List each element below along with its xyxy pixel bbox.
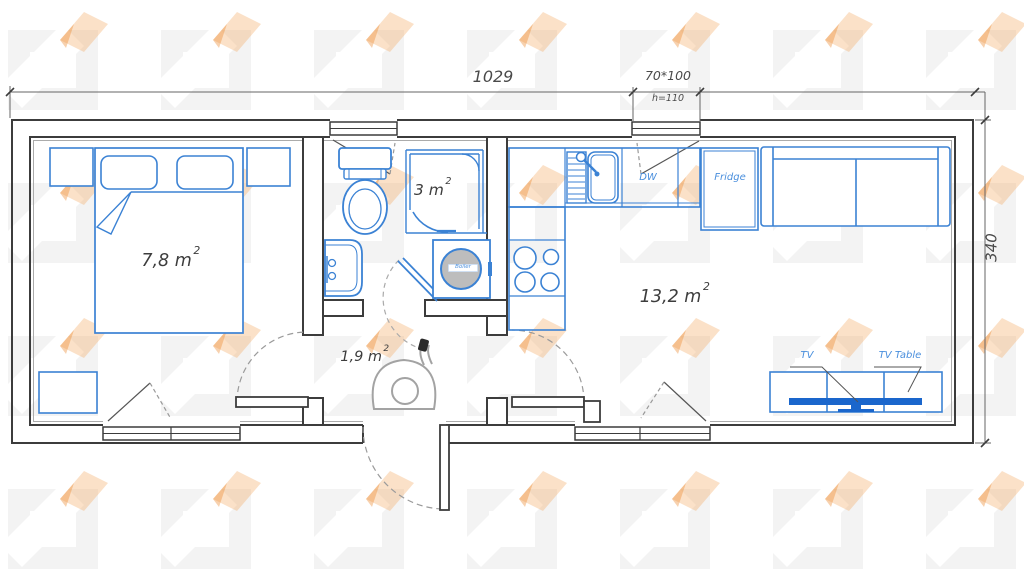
wall-bathroom-bottom-right bbox=[425, 300, 507, 316]
faucet-handle bbox=[329, 273, 336, 280]
pillow bbox=[177, 156, 233, 189]
dim-window-size: 70*100 bbox=[626, 70, 710, 83]
entrance-door-leaf bbox=[440, 425, 449, 510]
toilet bbox=[339, 148, 391, 234]
shower-door-arc bbox=[413, 212, 448, 232]
wall-stub-living bbox=[487, 398, 507, 425]
bedroom-bench bbox=[39, 372, 97, 413]
bathroom-sink bbox=[325, 240, 362, 296]
bedroom-door-leaf bbox=[236, 397, 308, 407]
dim-window-sill: h=110 bbox=[626, 94, 710, 104]
person-head bbox=[392, 378, 418, 404]
nightstand-left bbox=[50, 148, 93, 186]
stove bbox=[514, 247, 559, 292]
entrance-door bbox=[363, 419, 449, 510]
wall-bathroom-bottom-left bbox=[323, 300, 363, 316]
tv-table-label: TV Table bbox=[866, 351, 934, 361]
kitchen-sink bbox=[567, 152, 618, 203]
window-bathroom-top bbox=[330, 119, 397, 139]
living-door bbox=[512, 330, 600, 422]
nightstand-right bbox=[247, 148, 290, 186]
faucet-handle bbox=[329, 260, 336, 267]
hallway-area-label: 1,9 m2 bbox=[318, 349, 410, 364]
window-kitchen-top bbox=[632, 119, 700, 139]
bathroom-area-label: 3 m2 bbox=[390, 182, 474, 199]
fridge-label: Fridge bbox=[702, 173, 758, 183]
pillow bbox=[101, 156, 157, 189]
living-door-post bbox=[584, 401, 600, 422]
window-bedroom-bottom bbox=[103, 421, 240, 442]
living-door-leaf bbox=[512, 397, 584, 407]
window-living-bottom bbox=[575, 421, 710, 442]
floor-plan-canvas: 1029 70*100 h=110 340 7,8 m2 3 m2 1,9 m2… bbox=[0, 0, 1024, 576]
fridge bbox=[701, 148, 758, 230]
dishwasher-label: DW bbox=[626, 173, 670, 183]
floor-plan-drawing bbox=[0, 0, 1024, 576]
boiler-label: Boiler bbox=[448, 264, 478, 272]
living-area-label: 13,2 m2 bbox=[618, 287, 730, 306]
sofa bbox=[761, 147, 950, 226]
tv-label: TV bbox=[790, 351, 824, 361]
bed bbox=[95, 148, 243, 333]
bedroom-area-label: 7,8 m2 bbox=[118, 251, 222, 270]
shower-corner-shelf bbox=[462, 154, 479, 171]
dim-total-width: 1029 bbox=[450, 69, 536, 85]
dim-total-depth: 340 bbox=[985, 222, 1000, 274]
bedroom-door bbox=[236, 332, 308, 407]
wall-bedroom-bathroom bbox=[303, 137, 323, 335]
